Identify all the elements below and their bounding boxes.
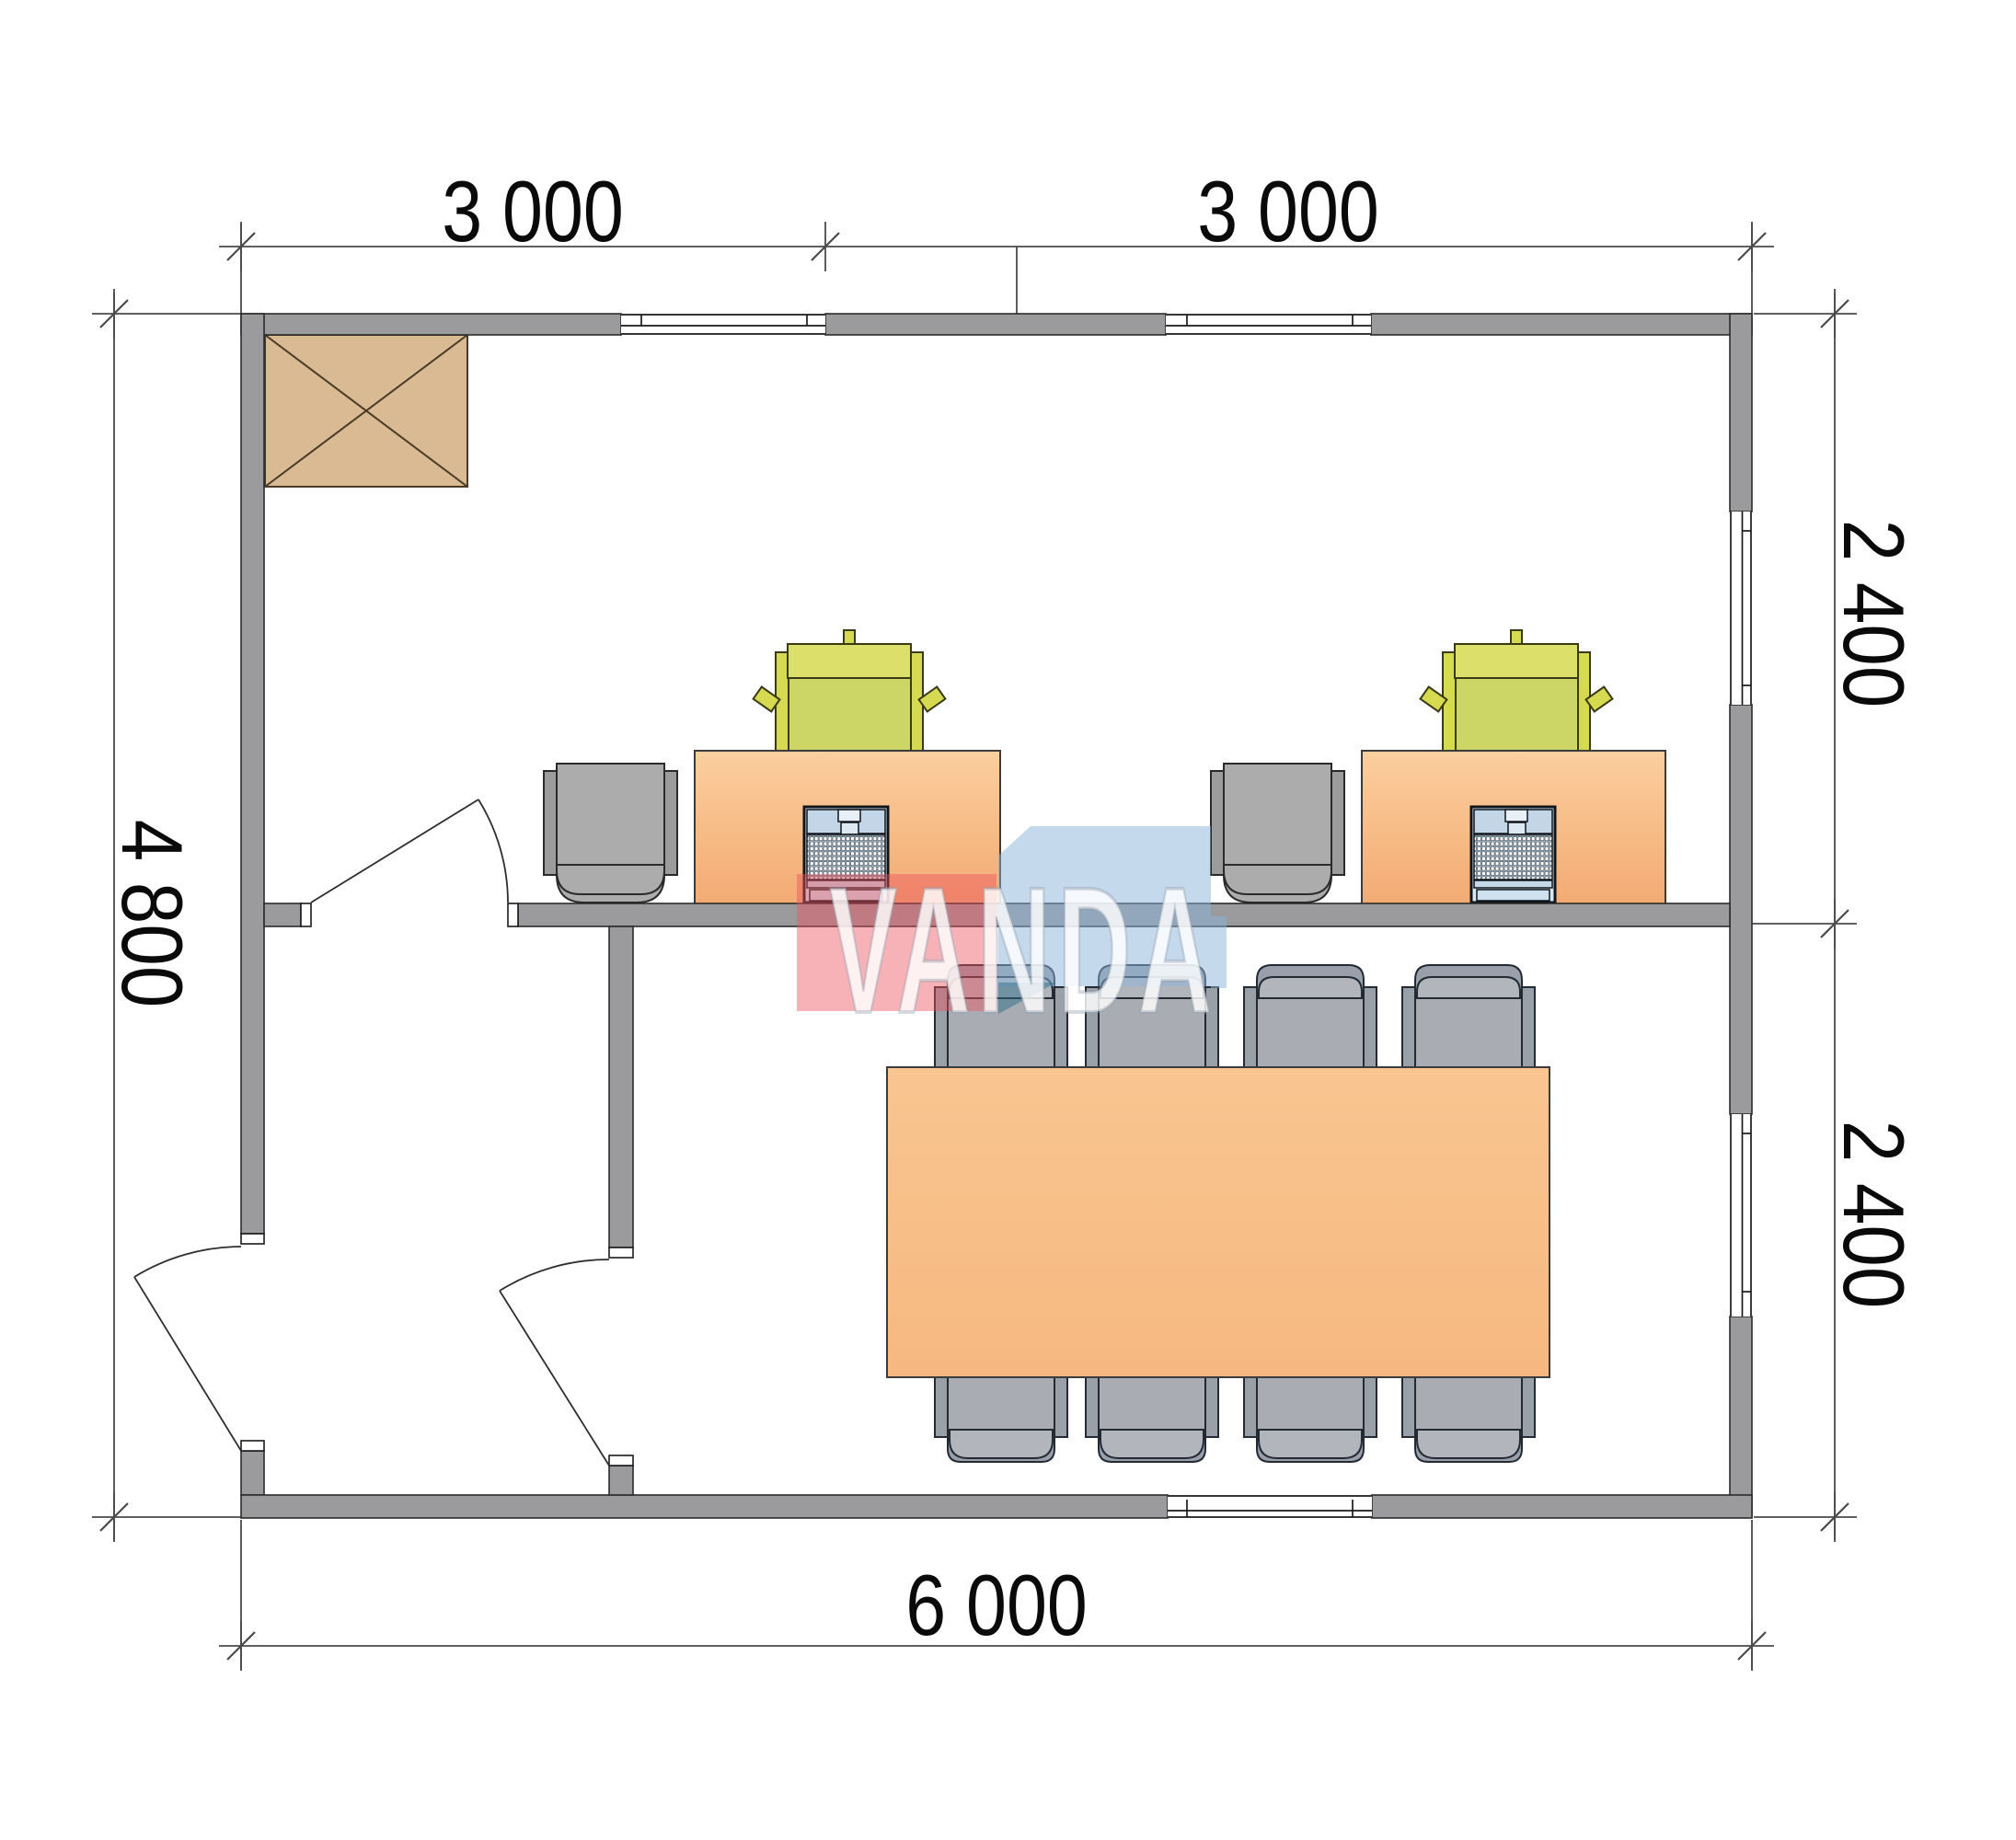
svg-text:3 000: 3 000 [442, 164, 624, 260]
svg-text:VANDA: VANDA [829, 850, 1218, 1051]
svg-text:6 000: 6 000 [905, 1558, 1088, 1654]
svg-text:3 000: 3 000 [1197, 164, 1379, 260]
svg-text:2 400: 2 400 [1826, 1121, 1923, 1309]
svg-text:4 800: 4 800 [104, 820, 202, 1008]
svg-text:2 400: 2 400 [1826, 520, 1923, 708]
